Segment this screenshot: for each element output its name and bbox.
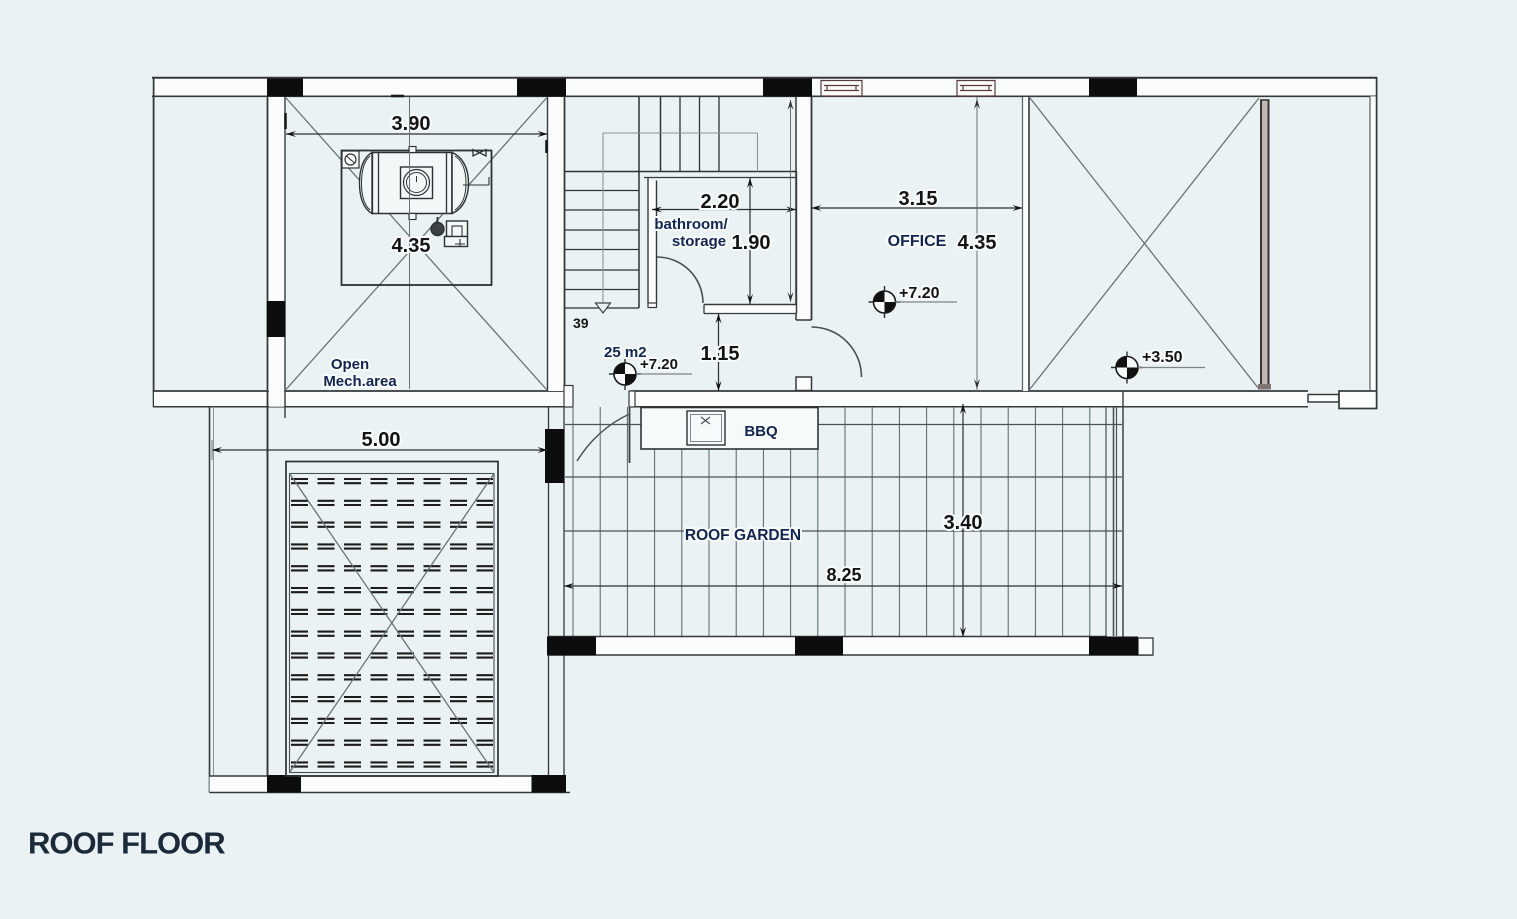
svg-text:3.90: 3.90: [392, 113, 431, 135]
svg-text:8.25: 8.25: [826, 565, 861, 585]
svg-text:storage: storage: [672, 233, 726, 250]
svg-text:1.15: 1.15: [701, 343, 740, 365]
svg-text:3.15: 3.15: [899, 188, 938, 210]
svg-text:3.40: 3.40: [944, 512, 983, 534]
svg-text:+7.20: +7.20: [640, 356, 678, 373]
svg-text:BBQ: BBQ: [744, 423, 778, 440]
svg-text:39: 39: [573, 315, 589, 331]
svg-text:Open: Open: [331, 356, 369, 373]
svg-text:bathroom/: bathroom/: [654, 216, 728, 233]
svg-text:1.90: 1.90: [732, 232, 771, 254]
svg-text:ROOF GARDEN: ROOF GARDEN: [685, 527, 801, 544]
svg-text:ROOF FLOOR: ROOF FLOOR: [28, 826, 225, 861]
svg-text:+3.50: +3.50: [1142, 349, 1183, 366]
svg-text:5.00: 5.00: [362, 429, 401, 451]
svg-text:4.35: 4.35: [958, 232, 997, 254]
svg-text:4.35: 4.35: [392, 235, 431, 257]
svg-text:+7.20: +7.20: [899, 285, 940, 302]
svg-text:OFFICE: OFFICE: [888, 233, 947, 250]
svg-text:Mech.area: Mech.area: [323, 373, 397, 390]
svg-text:2.20: 2.20: [701, 191, 740, 213]
